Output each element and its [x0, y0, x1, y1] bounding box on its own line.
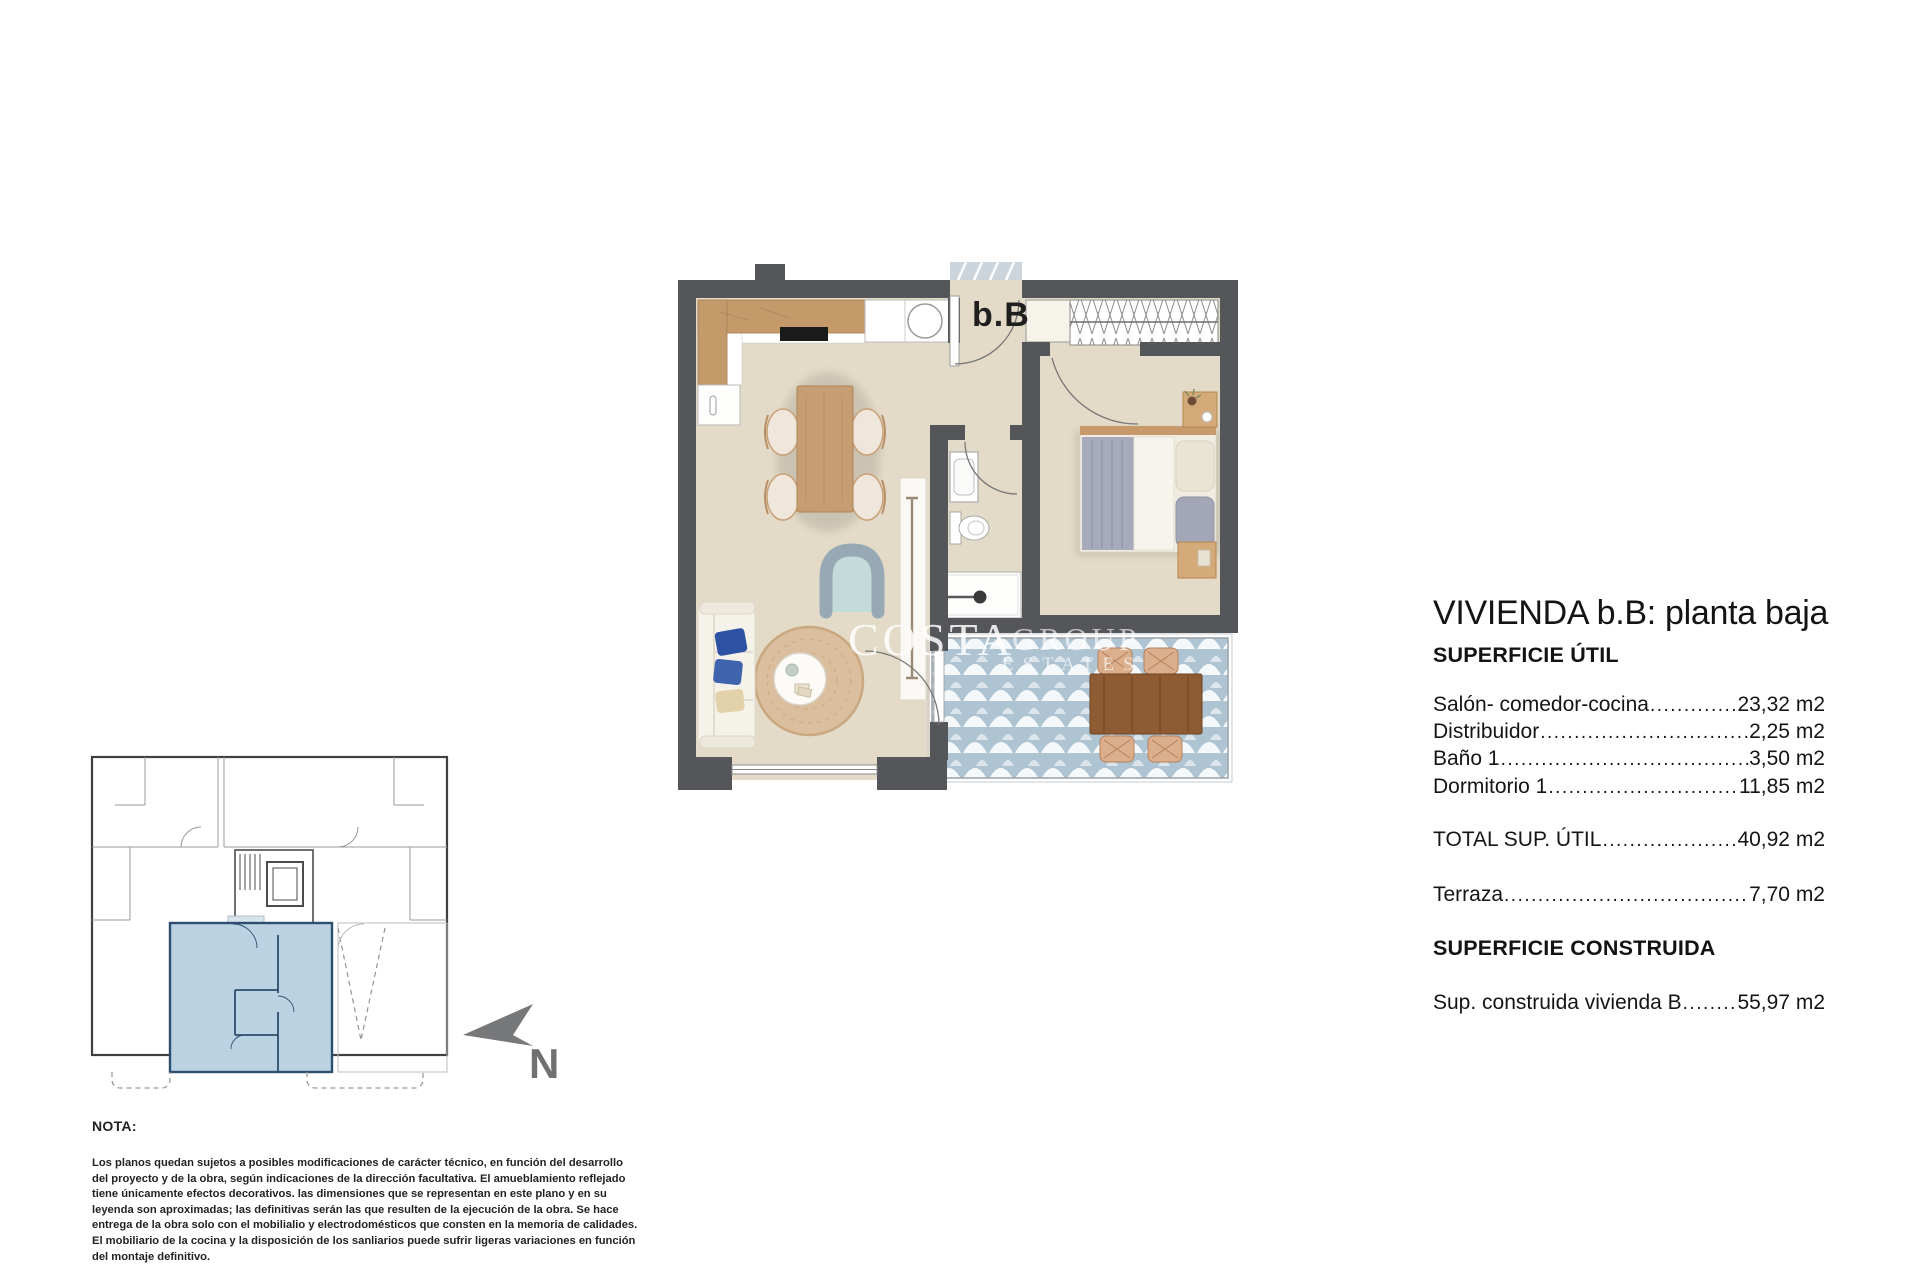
note-line: tiene únicamente efectos decorativos. la… — [92, 1187, 652, 1203]
row-dots: ........................................… — [1682, 993, 1738, 1015]
row-value: 7,70 m2 — [1749, 883, 1825, 907]
floor-plan-sheet: b.B COSTA GROUP ESTATES — [0, 0, 1920, 1280]
surface-row: Salón- comedor-cocina ..................… — [1433, 693, 1825, 717]
note-line: El mobiliario de la cocina y la disposic… — [92, 1234, 652, 1250]
shower-drain — [974, 591, 987, 604]
total-row: TOTAL SUP. ÚTIL ........................… — [1433, 828, 1825, 852]
row-value: 11,85 m2 — [1739, 775, 1825, 799]
cooktop — [780, 327, 828, 341]
north-arrow-icon — [463, 1004, 533, 1046]
watermark-word-costa: COSTA — [848, 614, 1015, 665]
watermark-word-group: GROUP — [1012, 621, 1140, 657]
bed-duvet — [1134, 437, 1174, 550]
row-label: Dormitorio 1 — [1433, 775, 1547, 799]
note-line: entrega de la obra solo con el mobiliali… — [92, 1218, 652, 1234]
row-dots: ........................................… — [1547, 777, 1739, 799]
surface-row: Dormitorio 1 ...........................… — [1433, 775, 1825, 799]
surface-row: Baño 1 .................................… — [1433, 747, 1825, 771]
row-value: 55,97 m2 — [1737, 991, 1825, 1015]
superficie-construida-heading: SUPERFICIE CONSTRUIDA — [1433, 936, 1716, 961]
plan-canvas: b.B COSTA GROUP ESTATES — [0, 0, 1920, 1280]
north-arrow: N — [463, 1004, 559, 1087]
entry-porch — [950, 262, 1022, 280]
row-dots: ........................................… — [1649, 695, 1738, 717]
sofa-pillow — [715, 689, 745, 714]
kitchen-cabinet — [698, 385, 740, 425]
plant — [1188, 397, 1197, 406]
dining-table — [797, 386, 853, 512]
overview-location-plan: N — [92, 757, 559, 1088]
row-value: 23,32 m2 — [1737, 693, 1825, 717]
entry-closet — [1026, 300, 1070, 342]
coffee-table-decor — [786, 664, 798, 676]
surface-row: Distribuidor ...........................… — [1433, 720, 1825, 744]
armchair — [826, 550, 878, 612]
bed-pillow — [1176, 441, 1214, 491]
terraza-row: Terraza ................................… — [1433, 883, 1825, 907]
north-label: N — [529, 1040, 559, 1087]
row-value: 40,92 m2 — [1737, 828, 1825, 852]
coffee-table — [774, 653, 826, 705]
dining-chair — [851, 474, 883, 520]
row-dots: ........................................… — [1601, 830, 1737, 852]
kitchen-sink — [908, 304, 942, 338]
row-label: Sup. construida vivienda B — [1433, 991, 1682, 1015]
note-line: leyenda son aproximadas; las definitivas… — [92, 1203, 652, 1219]
row-value: 2,25 m2 — [1749, 720, 1825, 744]
superficie-util-heading: SUPERFICIE ÚTIL — [1433, 643, 1619, 668]
dashed-terraces — [112, 1072, 423, 1088]
plan-title: VIVIENDA b.B: planta baja — [1433, 594, 1828, 633]
terrace-table — [1090, 674, 1202, 734]
row-label: Terraza — [1433, 883, 1503, 907]
unit-label: b.B — [972, 296, 1030, 334]
dining-chair — [767, 409, 799, 455]
sofa-pillow — [714, 628, 748, 657]
row-value: 3,50 m2 — [1749, 747, 1825, 771]
bedroom-desk — [1183, 392, 1217, 427]
row-label: TOTAL SUP. ÚTIL — [1433, 828, 1601, 852]
main-floor-plan: b.B — [678, 262, 1238, 790]
entry-door-leaf — [950, 296, 959, 366]
note-line: del montaje definitivo. — [92, 1250, 652, 1266]
dining-chair — [851, 409, 883, 455]
construida-row: Sup. construida vivienda B .............… — [1433, 991, 1825, 1015]
note-heading: NOTA: — [92, 1118, 652, 1134]
highlighted-unit — [170, 916, 332, 1072]
row-dots: ........................................… — [1500, 749, 1750, 771]
row-label: Baño 1 — [1433, 747, 1500, 771]
watermark-word-estates: ESTATES — [1002, 654, 1143, 675]
row-dots: ........................................… — [1503, 885, 1749, 907]
note-line: Los planos quedan sujetos a posibles mod… — [92, 1156, 652, 1172]
row-label: Distribuidor — [1433, 720, 1539, 744]
bed-blanket — [1082, 437, 1134, 550]
row-label: Salón- comedor-cocina — [1433, 693, 1649, 717]
note-line: del proyecto y de la obra, según indicac… — [92, 1172, 652, 1188]
row-dots: ........................................… — [1539, 722, 1749, 744]
dining-chair — [767, 474, 799, 520]
sofa-pillow — [713, 659, 743, 686]
bed-pillow — [1176, 497, 1214, 547]
note-block: NOTA: Los planos quedan sujetos a posibl… — [92, 1118, 652, 1265]
